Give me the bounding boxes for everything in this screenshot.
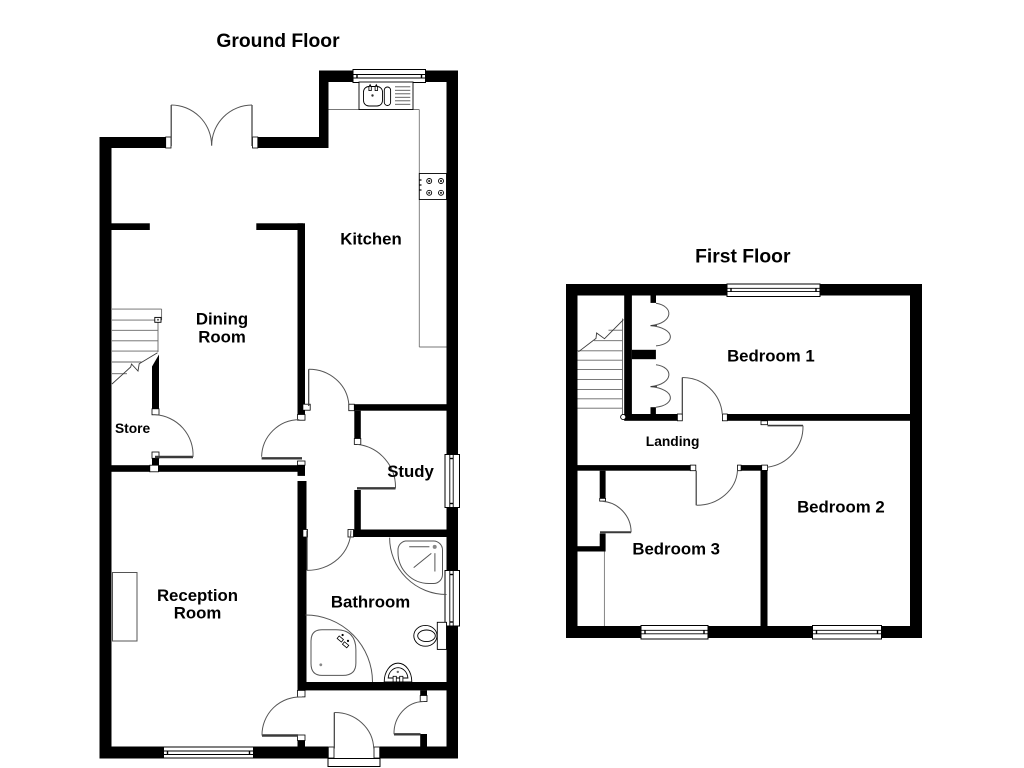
svg-text:Room: Room (174, 604, 222, 623)
svg-text:Store: Store (115, 421, 151, 436)
svg-text:Bedroom 1: Bedroom 1 (727, 347, 815, 366)
svg-text:Dining: Dining (196, 310, 248, 329)
svg-text:First Floor: First Floor (695, 247, 791, 268)
svg-text:Ground Floor: Ground Floor (216, 31, 340, 52)
svg-text:Landing: Landing (646, 434, 700, 449)
svg-text:Bedroom 3: Bedroom 3 (632, 540, 720, 559)
svg-text:Room: Room (198, 327, 246, 346)
svg-text:Study: Study (387, 462, 434, 481)
svg-text:Reception: Reception (157, 586, 238, 605)
svg-text:Bedroom 2: Bedroom 2 (797, 498, 885, 517)
svg-text:Kitchen: Kitchen (340, 230, 402, 249)
svg-text:Bathroom: Bathroom (331, 593, 410, 612)
